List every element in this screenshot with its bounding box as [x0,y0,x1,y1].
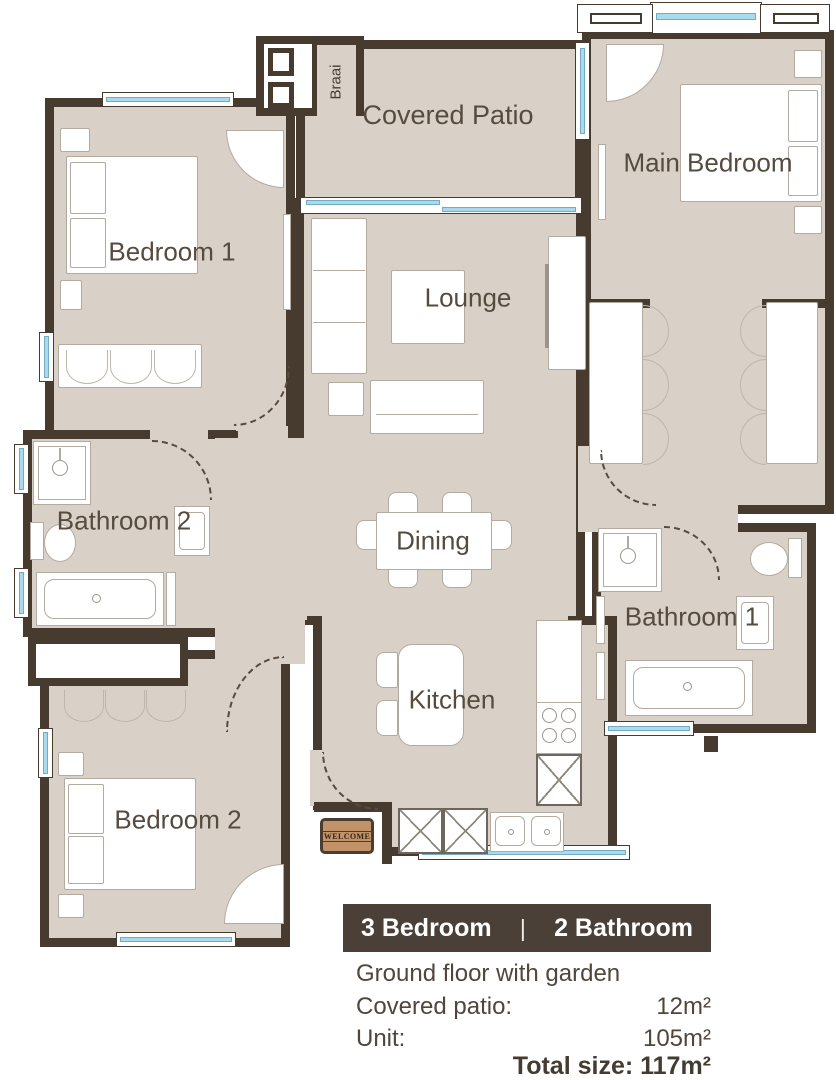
tv-unit [548,236,586,370]
welcome-mat: WELCOME [320,818,374,854]
window-glass [656,13,756,20]
dining-chair [490,520,512,550]
dining-chair [388,492,418,514]
sofa-cushion-line [376,414,478,415]
room-label-lounge: Lounge [425,283,512,312]
welcome-mat-text: WELCOME [321,831,373,842]
closet-door-arc [146,690,186,722]
closet-door-arc [154,350,196,384]
nightstand [794,50,822,78]
bathtub-drain [92,594,101,603]
floor-plan: WELCOME Covered Patio Braai Main Bedroom… [0,0,836,1080]
stove-burner [561,728,576,743]
shutter-slot [773,13,819,24]
toilet-bowl [750,542,788,576]
sofa-cushion-line [313,270,365,271]
closet-door-arc [66,350,108,384]
area-label: Unit: [356,1025,405,1053]
hallway-floor [215,438,305,664]
window-glass [580,48,585,134]
kitchen-chair [376,700,398,736]
shower-head [620,548,636,564]
braai-chimney-flue [268,82,294,108]
stove-burner [542,728,557,743]
pillow [788,90,818,142]
toilet-tank [30,522,44,560]
wall-segment [704,736,718,752]
summary-area-row: Unit: 105m² [356,1023,711,1055]
pillow [68,784,104,834]
towel-rail [596,596,605,644]
closet-door-arc [64,690,104,722]
summary-banner: 3 Bedroom | 2 Bathroom [343,904,711,952]
shower-head [52,460,68,476]
nightstand [60,128,90,152]
window-glass [19,448,24,490]
room-label-kitchen: Kitchen [409,685,496,714]
towel-rail [596,652,605,700]
tv [545,264,549,348]
window-glass [120,937,232,942]
nightstand [58,752,84,776]
shelf [598,144,606,220]
wall-segment [382,802,392,864]
sink-drain [544,829,550,835]
wardrobe [589,302,643,464]
window-glass [106,97,230,102]
pillow [70,162,106,214]
wall-opening [650,296,762,312]
window-glass [43,732,48,774]
sliding-door-glass [442,207,576,212]
shower-arm [627,536,629,548]
closet-door-arc [105,690,145,722]
room-label-braai: Braai [328,64,345,99]
sofa [370,380,484,434]
room-label-dining: Dining [396,526,470,555]
dresser [283,214,291,310]
summary-total: Total size: 117m² [356,1052,711,1080]
banner-bathrooms: 2 Bathroom [554,914,693,943]
sliding-door-glass [306,200,440,205]
nightstand [794,206,822,234]
wardrobe [766,302,818,464]
side-table [328,382,364,416]
braai-chimney-flue [268,48,294,76]
shutter-slot [590,13,642,24]
dining-chair [356,520,378,550]
shower-arm [59,448,61,460]
corner-cabinet [443,808,488,854]
closet [28,636,188,686]
wall-opening [238,426,288,444]
room-label-main-bedroom: Main Bedroom [623,148,793,177]
summary-subtitle: Ground floor with garden [356,960,712,988]
wall-opening [322,612,568,632]
toilet-tank [788,538,802,578]
window-glass [44,336,49,378]
room-label-covered-patio: Covered Patio [362,100,533,130]
window-glass [19,572,24,614]
corner-cabinet [398,808,443,854]
banner-bedrooms: 3 Bedroom [361,914,492,943]
corner-cabinet [536,754,582,806]
nightstand [58,894,84,918]
area-label: Covered patio: [356,993,512,1021]
summary-area-row: Covered patio: 12m² [356,991,711,1023]
wall-opening [293,444,307,620]
room-label-bedroom-1: Bedroom 1 [108,237,235,266]
area-value: 105m² [643,1025,711,1053]
room-label-bathroom-2: Bathroom 2 [57,506,191,535]
stove-burner [542,708,557,723]
closet-door-arc [110,350,152,384]
window-glass [608,726,690,731]
kitchen-counter [536,620,582,704]
sink-drain [508,829,514,835]
bathtub-drain [683,682,692,691]
nightstand [60,280,82,310]
banner-divider: | [520,915,526,942]
stove-burner [561,708,576,723]
room-label-bathroom-1: Bathroom 1 [625,602,759,631]
kitchen-chair [376,652,398,688]
towel-rail [166,572,176,626]
area-value: 12m² [656,993,711,1021]
room-label-bedroom-2: Bedroom 2 [114,805,241,834]
sofa-cushion-line [313,322,365,323]
dining-chair [442,492,472,514]
pillow [68,836,104,884]
pillow [70,218,106,268]
sofa [311,218,367,374]
